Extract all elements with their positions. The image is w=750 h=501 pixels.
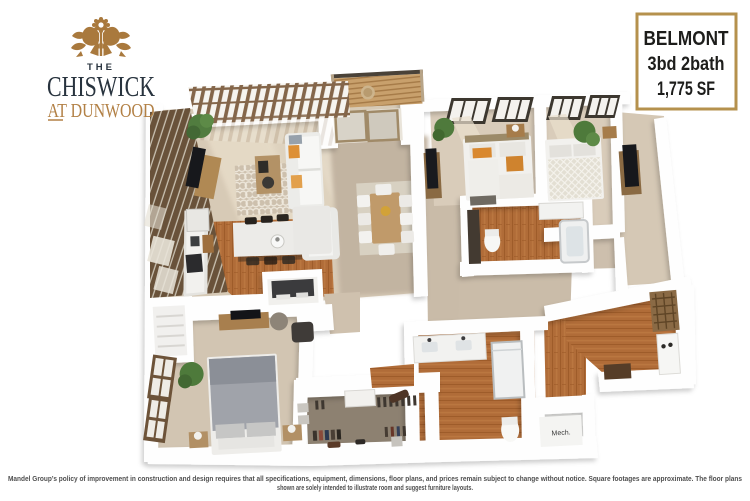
- svg-text:Mech.: Mech.: [551, 429, 570, 437]
- svg-text:CHISWICK: CHISWICK: [47, 71, 155, 103]
- svg-text:BELMONT: BELMONT: [644, 28, 729, 50]
- svg-text:1,775 SF: 1,775 SF: [657, 79, 715, 100]
- svg-text:3bd 2bath: 3bd 2bath: [648, 54, 725, 75]
- svg-text:AT DUNWOOD: AT DUNWOOD: [48, 100, 155, 122]
- svg-text:shown are solely intended to i: shown are solely intended to illustrate …: [277, 483, 473, 492]
- svg-text:Mandel Group’s policy of impro: Mandel Group’s policy of improvement in …: [8, 474, 742, 483]
